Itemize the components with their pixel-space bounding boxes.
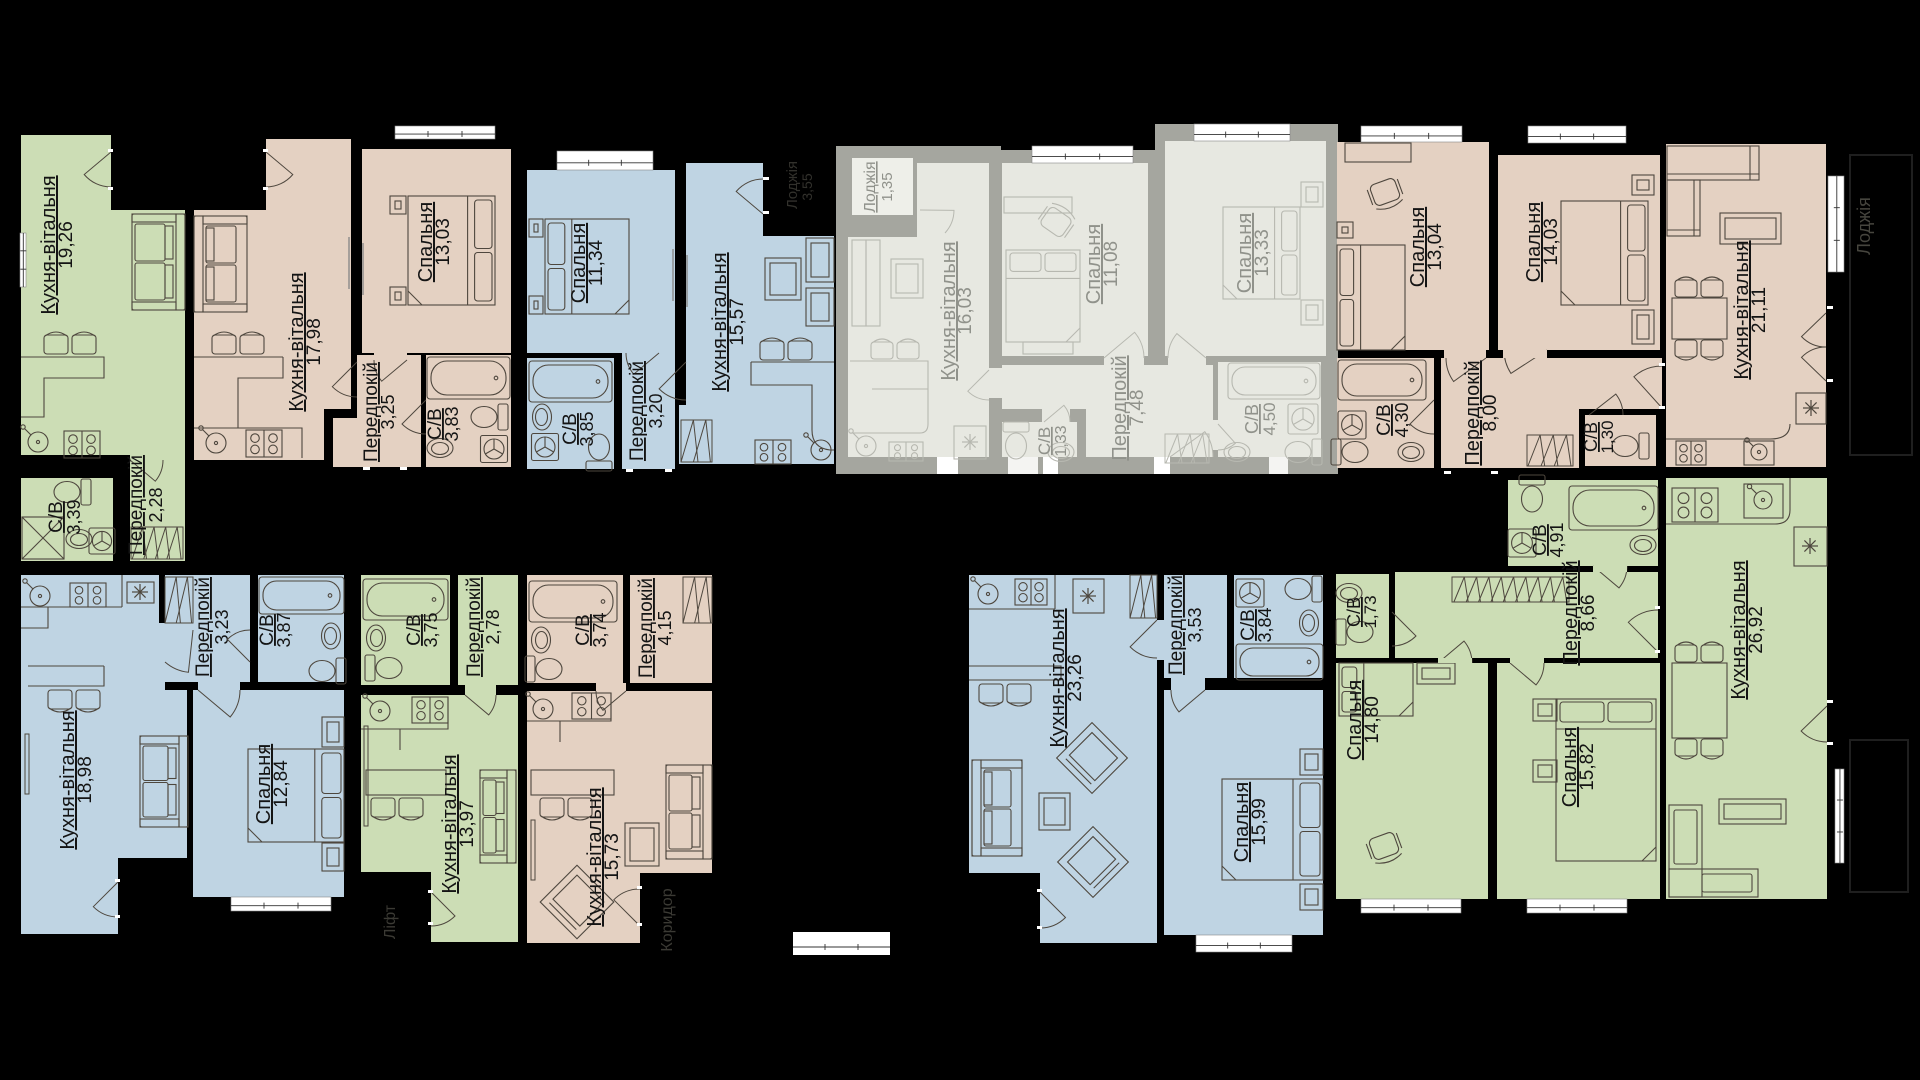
svg-text:15,82: 15,82 (1577, 743, 1598, 791)
svg-text:Передпокій: Передпокій (627, 361, 648, 461)
svg-text:Передпокій: Передпокій (193, 577, 214, 677)
svg-text:13,33: 13,33 (1252, 229, 1273, 277)
svg-text:14,03: 14,03 (1541, 218, 1562, 266)
svg-text:3,83: 3,83 (442, 406, 462, 441)
svg-text:Лоджія: Лоджія (862, 161, 879, 212)
svg-text:3,55: 3,55 (799, 173, 815, 200)
svg-text:Ліфт: Ліфт (382, 904, 399, 939)
svg-text:1,73: 1,73 (1361, 595, 1380, 628)
svg-text:С/В: С/В (1035, 427, 1054, 455)
svg-text:3,20: 3,20 (646, 393, 666, 428)
svg-text:11,34: 11,34 (586, 240, 607, 287)
svg-text:Передпокій: Передпокій (636, 578, 657, 678)
svg-text:1,30: 1,30 (1598, 420, 1617, 453)
svg-text:15,99: 15,99 (1249, 798, 1270, 846)
svg-text:16,03: 16,03 (955, 287, 976, 335)
svg-text:23,26: 23,26 (1065, 654, 1086, 702)
svg-text:7,48: 7,48 (1127, 390, 1148, 427)
svg-text:Лоджія: Лоджія (1854, 197, 1874, 255)
svg-text:Передпокій: Передпокій (126, 455, 147, 555)
svg-text:3,74: 3,74 (590, 612, 610, 647)
svg-text:3,39: 3,39 (64, 499, 84, 534)
svg-text:26,92: 26,92 (1746, 606, 1767, 654)
svg-text:С/В: С/В (1242, 404, 1262, 434)
svg-text:4,50: 4,50 (1260, 402, 1279, 435)
svg-text:21,11: 21,11 (1749, 287, 1770, 333)
svg-text:14,80: 14,80 (1362, 696, 1383, 744)
svg-text:Передпокій: Передпокій (1166, 575, 1187, 675)
svg-text:2,78: 2,78 (483, 609, 503, 644)
svg-text:Передпокій: Передпокій (464, 577, 485, 677)
svg-text:1,33: 1,33 (1053, 425, 1070, 456)
svg-text:4,30: 4,30 (1392, 402, 1412, 437)
svg-text:11,08: 11,08 (1101, 241, 1122, 287)
svg-text:4,15: 4,15 (655, 610, 675, 645)
svg-text:3,75: 3,75 (421, 612, 441, 647)
svg-text:8,66: 8,66 (1578, 595, 1599, 632)
svg-text:13,03: 13,03 (433, 218, 454, 266)
svg-text:12,84: 12,84 (271, 760, 292, 808)
svg-text:15,57: 15,57 (727, 298, 748, 346)
svg-text:3,85: 3,85 (577, 411, 597, 446)
svg-text:17,98: 17,98 (304, 318, 325, 366)
svg-text:13,97: 13,97 (457, 800, 478, 848)
svg-text:8,00: 8,00 (1480, 395, 1501, 432)
svg-text:15,73: 15,73 (602, 833, 623, 881)
svg-text:3,53: 3,53 (1185, 607, 1205, 642)
svg-text:19,26: 19,26 (56, 221, 77, 269)
svg-text:3,23: 3,23 (212, 609, 232, 644)
svg-text:2,28: 2,28 (146, 487, 166, 522)
svg-text:1,35: 1,35 (879, 172, 896, 201)
svg-text:Коридор: Коридор (659, 888, 676, 951)
svg-text:13,04: 13,04 (1425, 223, 1446, 271)
svg-text:3,84: 3,84 (1255, 607, 1275, 642)
svg-text:3,25: 3,25 (378, 394, 398, 429)
svg-text:18,98: 18,98 (75, 756, 96, 804)
svg-text:4,91: 4,91 (1547, 522, 1567, 557)
svg-text:3,87: 3,87 (274, 612, 294, 647)
